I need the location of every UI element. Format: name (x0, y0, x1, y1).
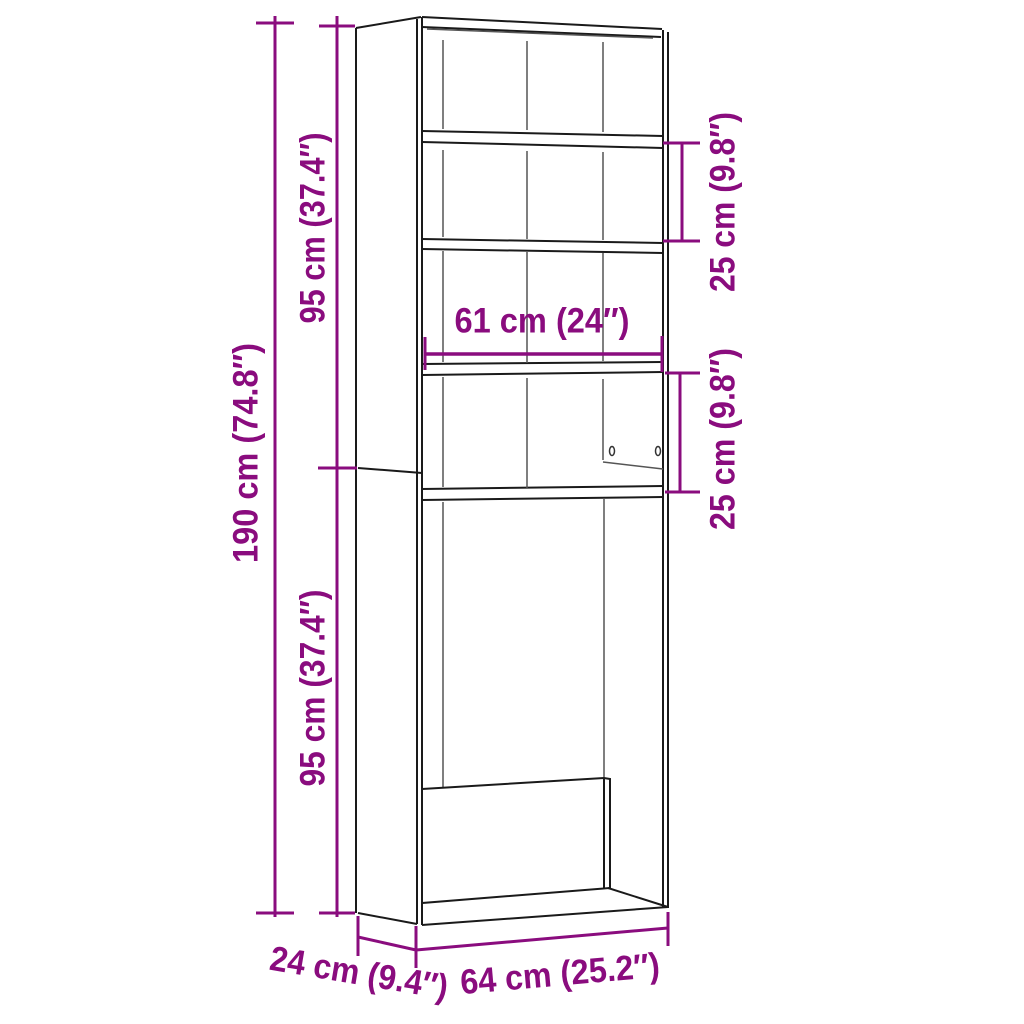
lower-section-height-label: 95 cm (37.4″) (294, 590, 333, 787)
shelf-pin-hole-right (656, 447, 661, 456)
bottom-board-front-bottom-edge (422, 497, 663, 500)
dimension-labels: 190 cm (74.8″) 95 cm (37.4″) 95 cm (37.4… (227, 112, 743, 1007)
right-side-bottom-edge (608, 888, 668, 907)
bottom-front-edge (422, 907, 668, 925)
shelf-1-front-bottom-edge (422, 142, 663, 148)
bottom-board-back-edge (603, 462, 663, 469)
inner-width-label: 61 cm (24″) (455, 302, 630, 341)
top-board-bottom-edge (422, 27, 661, 37)
top-left-edge (356, 17, 421, 28)
top-front-edge (422, 17, 662, 29)
depth-line (358, 937, 416, 950)
upper-shelf-spacing-label: 25 cm (9.8″) (704, 112, 743, 292)
lower-shelf-spacing-label: 25 cm (9.8″) (704, 348, 743, 530)
shelf-3-front-top-edge (422, 362, 663, 364)
bottom-board-front-top-edge (422, 486, 663, 489)
left-side-bottom-edge (358, 913, 417, 924)
diagram-canvas: 190 cm (74.8″) 95 cm (37.4″) 95 cm (37.4… (0, 0, 1024, 1024)
section-divider-edge (358, 468, 422, 473)
shelf-2-front-top-edge (422, 239, 663, 243)
outer-width-label: 64 cm (25.2″) (459, 946, 662, 1002)
total-height-label: 190 cm (74.8″) (227, 343, 266, 563)
furniture-dimension-diagram: 190 cm (74.8″) 95 cm (37.4″) 95 cm (37.4… (0, 0, 1024, 1024)
shelf-1-front-top-edge (422, 131, 663, 136)
shelf-pin-hole-left (610, 447, 615, 456)
kick-panel (422, 778, 610, 903)
shelf-3-front-bottom-edge (422, 372, 663, 375)
shelf-2-front-bottom-edge (422, 249, 663, 253)
outer-width-line (416, 928, 668, 950)
top-board-back-edge (427, 29, 653, 38)
upper-section-height-label: 95 cm (37.4″) (294, 133, 333, 324)
cabinet-drawing (356, 17, 668, 925)
